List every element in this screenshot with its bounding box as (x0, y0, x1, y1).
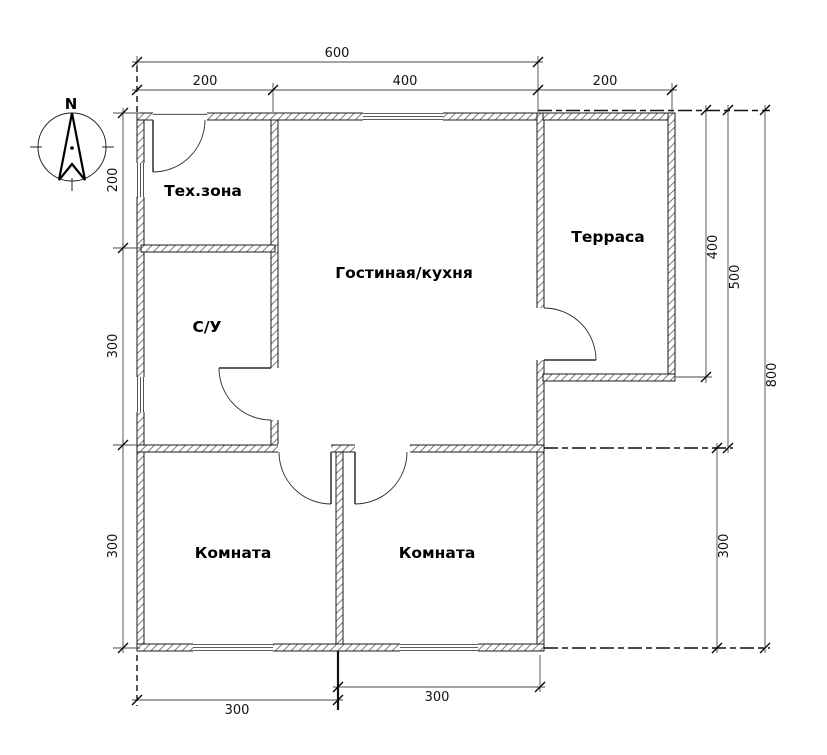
wall-middle-horizontal (137, 445, 544, 452)
room-label-living: Гостиная/кухня (335, 264, 473, 282)
compass-center-dot (70, 146, 74, 150)
dim-label-top-left: 200 (193, 74, 218, 89)
window-tech-left (136, 163, 145, 197)
dim-label-bottom-right: 300 (425, 690, 450, 705)
wall-terrace-bottom (543, 374, 675, 381)
door-opening-bathroom (270, 368, 279, 420)
dim-label-right-bedroom: 300 (717, 534, 732, 559)
room-labels-layer: Тех.зона С/У Гостиная/кухня Терраса Комн… (164, 182, 645, 562)
dim-label-right-total: 800 (765, 363, 780, 388)
dim-label-top-middle: 400 (393, 74, 418, 89)
room-label-bathroom: С/У (193, 318, 222, 336)
wall-tech-bathroom-divider (141, 245, 275, 252)
dim-label-right-terrace: 400 (706, 235, 721, 260)
window-bedroom-right-bottom (400, 643, 478, 652)
dim-label-left-bedroom: 300 (106, 534, 121, 559)
door-terrace (544, 308, 596, 360)
compass-rose: N (30, 95, 114, 191)
window-living-top (363, 112, 443, 121)
dim-label-bottom-left: 300 (225, 703, 250, 718)
room-label-terrace: Терраса (571, 228, 644, 246)
floor-plan-sheet: 600 200 400 200 200 300 300 400 500 800 … (0, 0, 827, 755)
wall-bedroom-divider (336, 452, 343, 644)
north-label: N (65, 95, 78, 113)
room-label-bedroom-right: Комната (399, 544, 476, 562)
door-opening-terrace (536, 308, 545, 360)
dim-label-right-upper: 500 (728, 265, 743, 290)
door-bedroom-left (279, 452, 331, 504)
room-label-tech: Тех.зона (164, 182, 242, 200)
door-opening-bedroom-left (278, 444, 331, 453)
dim-label-top-total: 600 (325, 46, 350, 61)
dim-label-left-bathroom: 300 (106, 334, 121, 359)
wall-exterior-right (537, 113, 544, 651)
window-bathroom-left (136, 377, 145, 412)
dimensions-layer: 600 200 400 200 200 300 300 400 500 800 … (106, 46, 780, 718)
dim-label-top-terrace: 200 (593, 74, 618, 89)
wall-terrace-right (668, 113, 675, 381)
door-bathroom (219, 368, 271, 420)
dim-label-left-tech: 200 (106, 168, 121, 193)
door-bedroom-right (355, 452, 407, 504)
door-tech (153, 120, 205, 172)
door-opening-tech (153, 112, 207, 121)
door-opening-bedroom-right (355, 444, 410, 453)
room-label-bedroom-left: Комната (195, 544, 272, 562)
wall-terrace-top (543, 113, 675, 120)
window-bedroom-left-bottom (193, 643, 273, 652)
floor-plan-drawing: 600 200 400 200 200 300 300 400 500 800 … (0, 0, 827, 755)
